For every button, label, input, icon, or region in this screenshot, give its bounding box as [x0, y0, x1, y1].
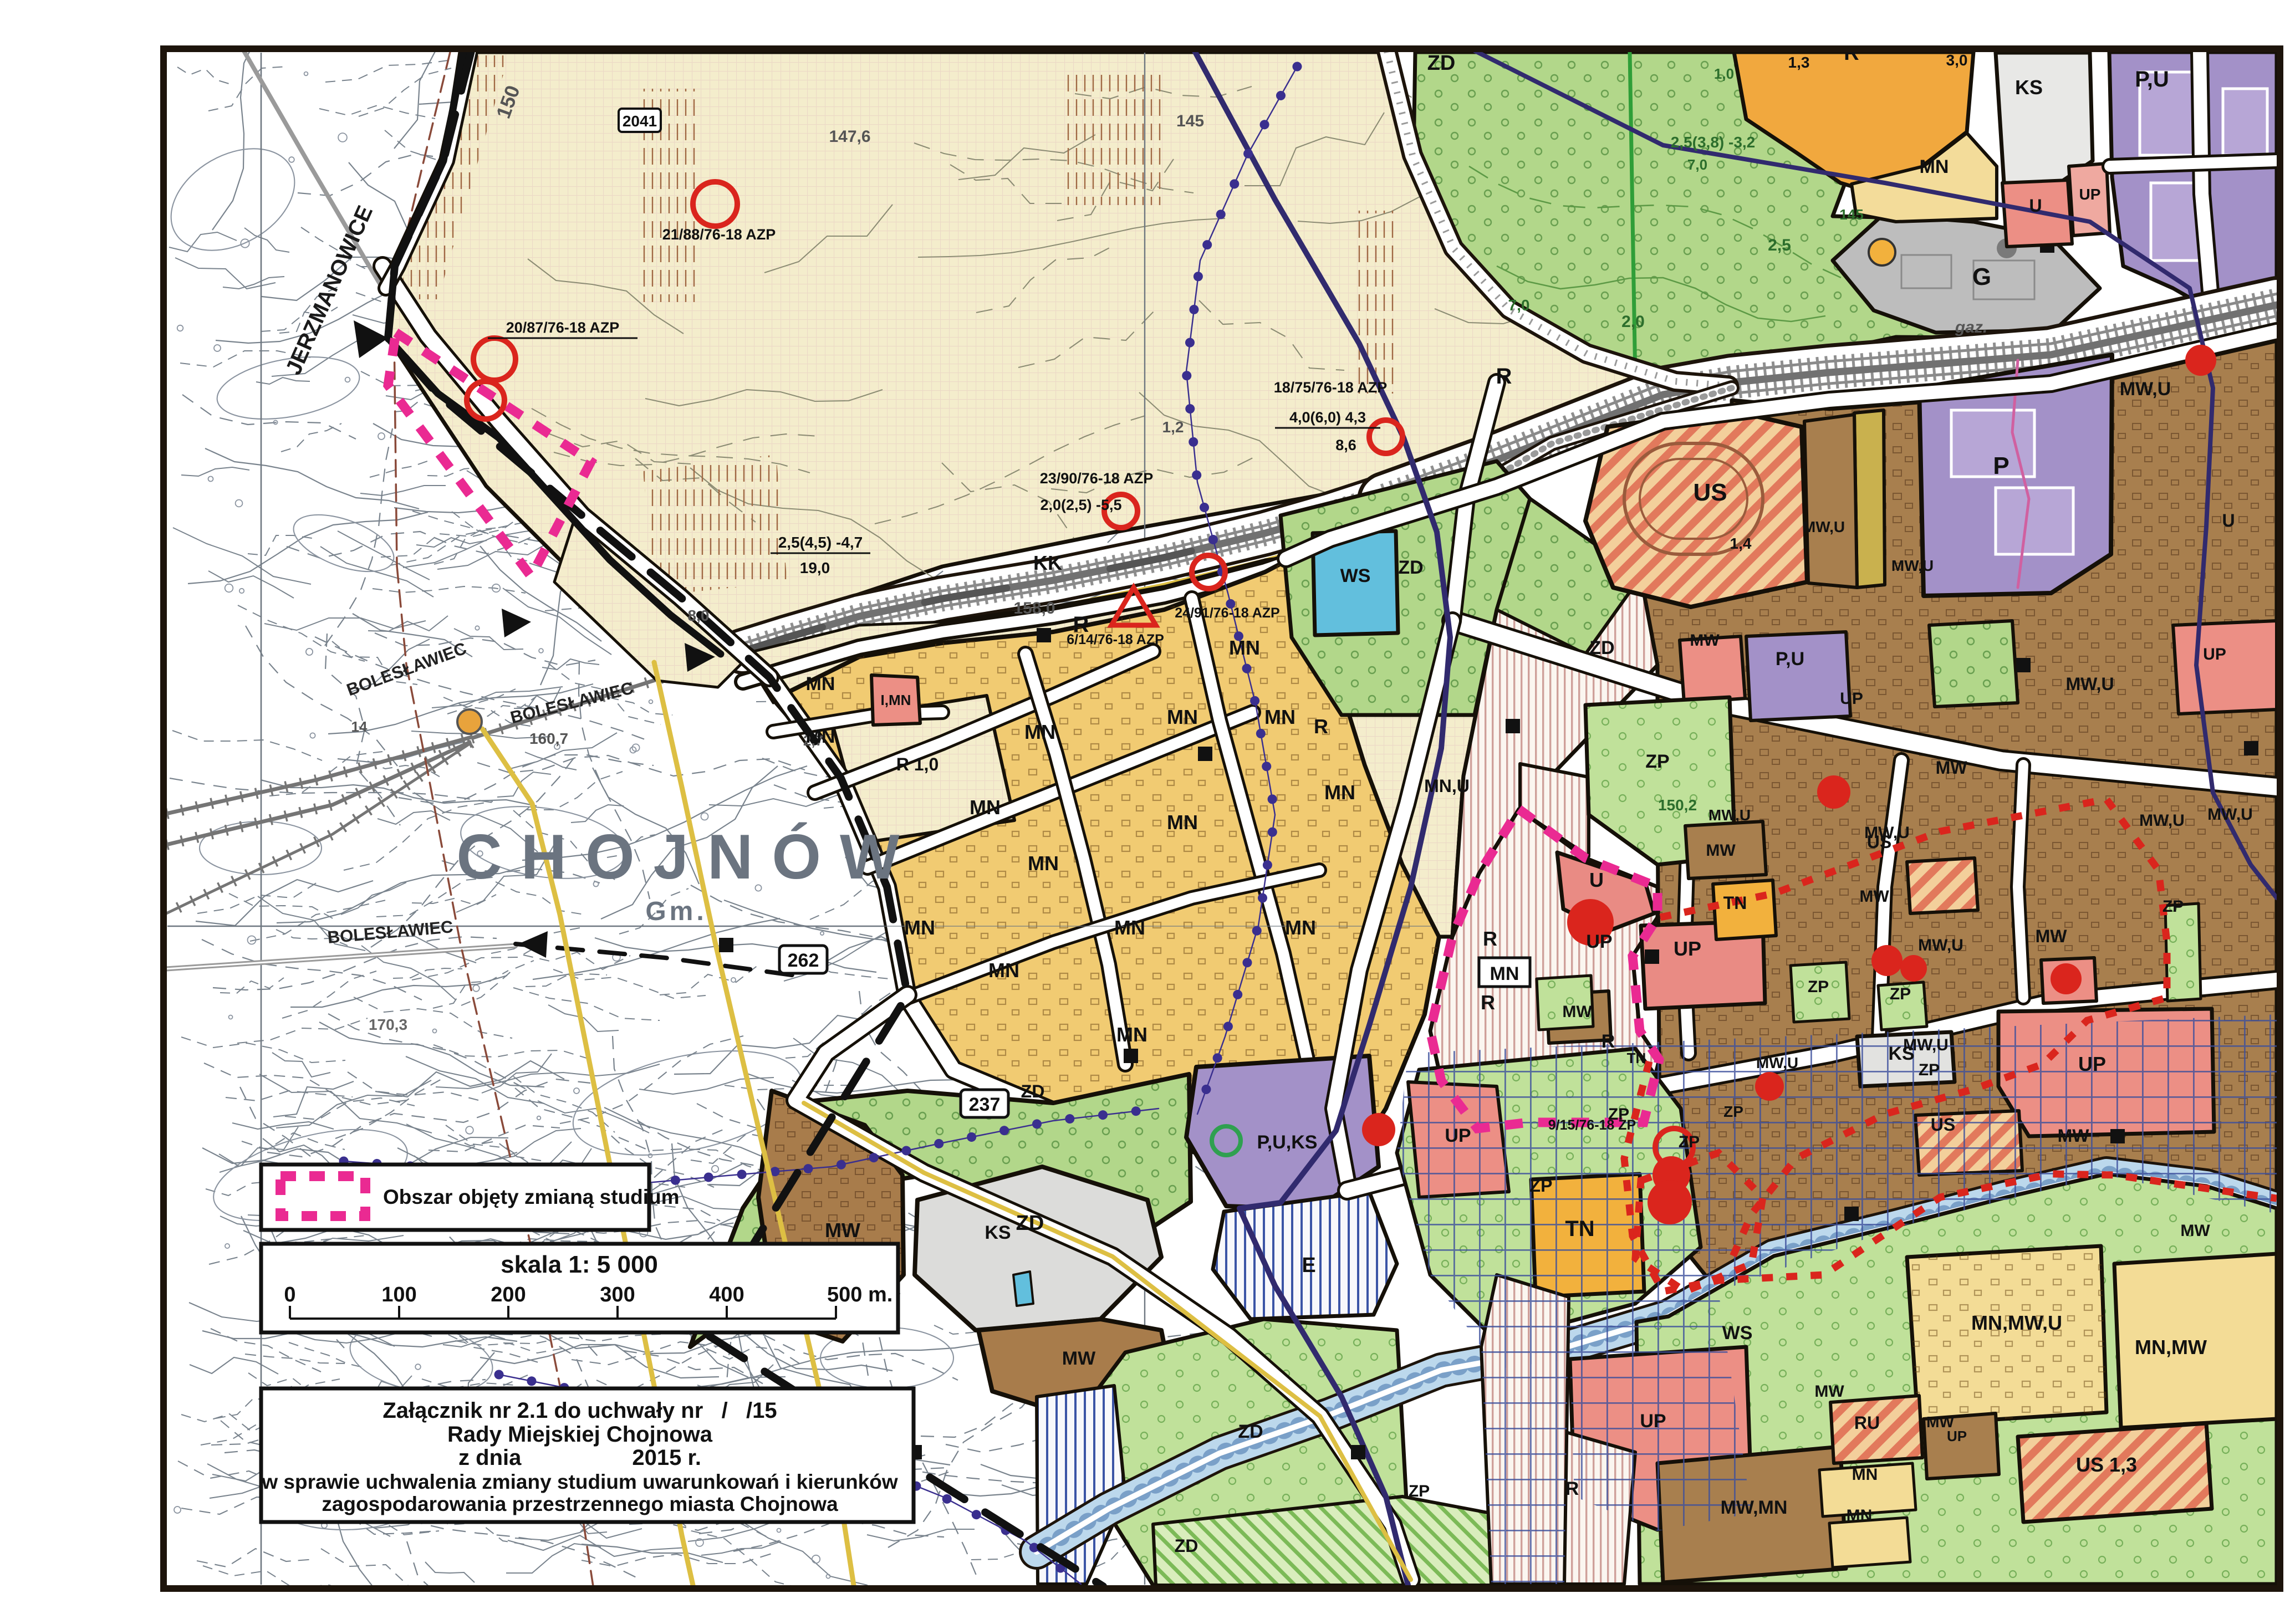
svg-text:MW: MW	[1926, 1413, 1954, 1431]
svg-text:MW: MW	[1562, 1003, 1592, 1021]
svg-text:0: 0	[284, 1283, 295, 1306]
svg-text:ZP: ZP	[1808, 978, 1829, 996]
svg-text:P,U: P,U	[2135, 67, 2169, 91]
svg-text:100: 100	[381, 1283, 416, 1306]
svg-text:MN,U: MN,U	[1424, 776, 1470, 796]
svg-text:TN: TN	[1723, 893, 1747, 913]
svg-text:1,4: 1,4	[1730, 535, 1752, 552]
svg-text:300: 300	[600, 1283, 635, 1306]
svg-text:MW: MW	[2036, 926, 2068, 946]
svg-text:MN,MW: MN,MW	[2135, 1336, 2207, 1359]
svg-text:262: 262	[788, 950, 819, 971]
svg-text:ZP: ZP	[1409, 1482, 1430, 1500]
svg-text:z dnia 2015 r: z dnia 2015 r.	[458, 1446, 701, 1470]
svg-text:RU: RU	[1854, 1413, 1880, 1433]
svg-text:WS: WS	[1722, 1322, 1753, 1344]
svg-text:US: US	[1693, 479, 1727, 506]
svg-text:UP: UP	[1674, 937, 1701, 960]
svg-text:MN: MN	[1167, 706, 1198, 728]
svg-text:WS: WS	[1340, 565, 1371, 586]
svg-text:UP: UP	[2203, 645, 2226, 663]
svg-text:MW,U: MW,U	[2139, 811, 2185, 830]
svg-text:MW: MW	[1690, 631, 1720, 650]
svg-text:160,7: 160,7	[529, 730, 568, 747]
svg-text:MW,U: MW,U	[1864, 824, 1910, 842]
svg-text:MN: MN	[1116, 1023, 1147, 1046]
svg-text:400: 400	[709, 1283, 744, 1306]
svg-text:145: 145	[1176, 112, 1204, 130]
svg-text:U: U	[1589, 869, 1604, 891]
svg-text:ZP: ZP	[1645, 751, 1669, 772]
svg-text:MN: MN	[1852, 1465, 1878, 1484]
svg-text:MW: MW	[1706, 841, 1736, 860]
svg-text:CHOJNÓW: CHOJNÓW	[456, 822, 918, 892]
svg-text:23/90/76-18 AZP: 23/90/76-18 AZP	[1040, 470, 1154, 487]
svg-text:MN: MN	[904, 916, 935, 939]
svg-text:Rady Miejskiej Chojnowa: Rady Miejskiej Chojnowa	[447, 1422, 713, 1447]
svg-text:ZP: ZP	[2163, 897, 2184, 916]
svg-text:I,MN: I,MN	[881, 692, 911, 708]
svg-text:147,6: 147,6	[829, 127, 870, 146]
svg-text:R: R	[1481, 991, 1495, 1014]
svg-text:MW,U: MW,U	[1903, 1036, 1949, 1054]
svg-text:U: U	[2029, 196, 2042, 216]
svg-text:MW,U: MW,U	[1708, 806, 1751, 824]
svg-text:R: R	[1314, 715, 1328, 738]
svg-text:MW,U: MW,U	[2120, 379, 2171, 400]
svg-text:Obszar objęty zmianą studium: Obszar objęty zmianą studium	[383, 1186, 680, 1208]
svg-text:MN,MW,U: MN,MW,U	[1971, 1311, 2062, 1334]
svg-text:MN: MN	[1114, 916, 1145, 939]
svg-text:2,0(2,5) -5,5: 2,0(2,5) -5,5	[1040, 497, 1121, 513]
svg-text:MW,U: MW,U	[1803, 518, 1845, 535]
svg-text:ZP: ZP	[1608, 1105, 1629, 1123]
svg-text:R: R	[1073, 612, 1089, 637]
svg-text:14: 14	[351, 718, 368, 735]
svg-text:1,2: 1,2	[1162, 418, 1184, 436]
svg-text:20/87/76-18 AZP: 20/87/76-18 AZP	[506, 319, 620, 336]
svg-text:MN: MN	[1028, 852, 1059, 875]
svg-text:200: 200	[491, 1283, 526, 1306]
svg-text:2,5(4,5) -4,7: 2,5(4,5) -4,7	[778, 534, 863, 551]
svg-text:R: R	[1565, 1478, 1579, 1499]
svg-text:P: P	[1993, 452, 2009, 479]
svg-text:145: 145	[1839, 206, 1863, 223]
svg-text:U: U	[2222, 510, 2235, 530]
svg-text:7,0: 7,0	[1687, 156, 1707, 173]
svg-text:UP: UP	[2079, 186, 2101, 203]
svg-text:21/88/76-18 AZP: 21/88/76-18 AZP	[662, 226, 776, 243]
svg-text:R: R	[1496, 364, 1512, 389]
svg-text:MW: MW	[1859, 887, 1889, 906]
svg-text:KK: KK	[1033, 551, 1062, 574]
svg-text:ZP: ZP	[1890, 985, 1911, 1003]
svg-text:MN: MN	[1920, 156, 1949, 177]
svg-text:Załącznik nr 2.1 do uchwały nr: Załącznik nr 2.1 do uchwały nr / /15	[382, 1398, 777, 1423]
svg-text:E: E	[1302, 1254, 1315, 1277]
svg-text:8,0: 8,0	[688, 607, 710, 624]
svg-text:237: 237	[969, 1094, 1001, 1115]
svg-text:UP: UP	[1586, 931, 1612, 952]
svg-text:ZP: ZP	[1919, 1061, 1940, 1079]
svg-text:w sprawie uchwalenia zmiany st: w sprawie uchwalenia zmiany studium uwar…	[261, 1470, 897, 1493]
svg-text:MN: MN	[806, 726, 835, 747]
svg-text:MW: MW	[1814, 1382, 1844, 1401]
svg-text:UP: UP	[2078, 1053, 2106, 1075]
svg-text:18/75/76-18 AZP: 18/75/76-18 AZP	[1274, 379, 1388, 396]
svg-text:158,0: 158,0	[1013, 599, 1055, 617]
svg-text:ZD: ZD	[1238, 1421, 1263, 1442]
svg-text:2,5(3,8) -3,2: 2,5(3,8) -3,2	[1671, 134, 1756, 151]
svg-text:150,2: 150,2	[1658, 796, 1697, 814]
svg-text:2041: 2041	[623, 113, 657, 130]
svg-text:G: G	[1972, 263, 1991, 290]
svg-text:Gm.: Gm.	[645, 897, 707, 926]
svg-text:ZP: ZP	[1679, 1133, 1700, 1151]
svg-text:MN: MN	[1229, 636, 1260, 659]
svg-text:MN: MN	[1285, 916, 1316, 939]
svg-text:3,0: 3,0	[1946, 52, 1968, 69]
svg-text:ZD: ZD	[1016, 1212, 1044, 1235]
svg-text:ZD: ZD	[1175, 1536, 1198, 1556]
svg-text:170,3: 170,3	[369, 1016, 407, 1033]
svg-text:2,0: 2,0	[1621, 313, 1645, 331]
svg-text:UP: UP	[1640, 1411, 1666, 1432]
svg-text:MN: MN	[970, 796, 1001, 819]
svg-text:2,5: 2,5	[1768, 236, 1791, 254]
svg-text:ZP: ZP	[1723, 1103, 1743, 1120]
svg-text:KS: KS	[985, 1222, 1011, 1243]
svg-text:7,0: 7,0	[1508, 297, 1530, 314]
svg-text:MW,U: MW,U	[2065, 674, 2114, 694]
svg-text:4,0(6,0) 4,3: 4,0(6,0) 4,3	[1289, 409, 1366, 426]
svg-text:MN: MN	[1024, 721, 1055, 743]
svg-text:R 1,0: R 1,0	[896, 754, 939, 774]
svg-text:TN: TN	[1565, 1217, 1594, 1241]
svg-text:UP: UP	[1445, 1125, 1471, 1146]
svg-text:ZD: ZD	[1021, 1081, 1045, 1101]
svg-text:MW,U: MW,U	[1756, 1054, 1798, 1071]
svg-text:MW,U: MW,U	[2207, 805, 2253, 824]
svg-text:MW,MN: MW,MN	[1721, 1497, 1788, 1518]
svg-text:MN: MN	[1264, 706, 1296, 728]
svg-text:MW: MW	[825, 1219, 860, 1242]
svg-text:skala 1: 5 000: skala 1: 5 000	[501, 1251, 658, 1278]
svg-text:P,U,KS: P,U,KS	[1257, 1132, 1318, 1153]
svg-text:MN: MN	[1847, 1506, 1873, 1525]
svg-text:MN: MN	[1167, 811, 1198, 834]
svg-text:R: R	[1602, 1031, 1615, 1052]
svg-text:19,0: 19,0	[800, 559, 830, 576]
svg-text:P,U: P,U	[1776, 648, 1804, 670]
svg-text:US 1,3: US 1,3	[2076, 1453, 2137, 1476]
svg-text:MN: MN	[1490, 963, 1519, 984]
svg-text:US: US	[1931, 1115, 1955, 1135]
svg-text:TN: TN	[1627, 1050, 1646, 1066]
svg-text:MW,U: MW,U	[1918, 936, 1963, 954]
svg-text:MW: MW	[1936, 758, 1968, 778]
svg-text:MW: MW	[2180, 1222, 2210, 1240]
svg-text:MN: MN	[988, 959, 1019, 982]
svg-text:24/91/76-18 AZP: 24/91/76-18 AZP	[1175, 605, 1279, 621]
svg-text:UP: UP	[1840, 690, 1863, 708]
svg-text:KS: KS	[2015, 76, 2043, 99]
svg-text:MN: MN	[1324, 781, 1355, 804]
svg-text:ZD: ZD	[1427, 52, 1456, 75]
svg-text:1,0: 1,0	[1714, 65, 1734, 82]
svg-text:MN: MN	[806, 673, 835, 694]
svg-text:zagospodarowania przestrzenneg: zagospodarowania przestrzennego miasta C…	[322, 1493, 838, 1515]
svg-text:R: R	[1483, 927, 1497, 950]
svg-text:8,6: 8,6	[1335, 437, 1356, 453]
svg-text:ZP: ZP	[1530, 1176, 1553, 1196]
svg-text:MW: MW	[1062, 1348, 1096, 1369]
svg-text:MW: MW	[2058, 1126, 2090, 1146]
svg-text:ZD: ZD	[1589, 637, 1614, 658]
svg-text:1,3: 1,3	[1788, 54, 1810, 71]
svg-text:gaz.: gaz.	[1955, 318, 1987, 336]
svg-text:MW,U: MW,U	[1891, 557, 1934, 574]
svg-text:ZD: ZD	[1398, 557, 1423, 578]
svg-text:500 m.: 500 m.	[827, 1283, 892, 1306]
